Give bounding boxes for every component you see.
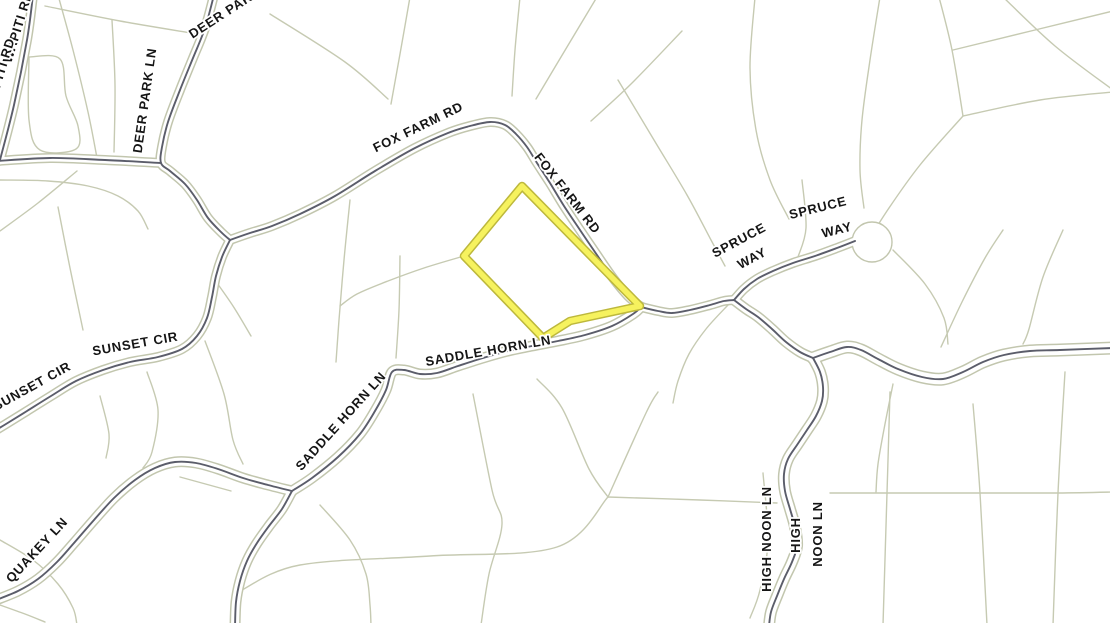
parcel-line-11 [336,200,350,362]
parcel-line-12 [340,256,464,306]
parcel-line-21 [973,404,987,623]
road-label-spruce-way-2b: WAY [820,219,854,241]
parcel-line-37 [512,0,520,96]
parcel-line-3 [28,56,80,153]
road-casing-high-noon-ln [769,358,823,623]
parcel-line-45 [180,477,231,491]
parcel-line-34 [860,0,880,208]
road-label-spruce-way-2a: SPRUCE [787,193,848,222]
road-label-high-noon-ln-2b: NOON LN [810,501,825,567]
parcel-line-13 [473,394,502,623]
parcel-line-36 [391,0,410,104]
parcel-line-28 [1023,230,1063,344]
parcel-line-46 [0,605,45,622]
parcel-line-17 [608,497,777,503]
road-saddle-horn-ln [292,307,641,491]
parcel-line-22 [1053,372,1065,623]
road-label-fox-farm-rd-2: FOX FARM RD [531,150,603,237]
parcel-line-39 [591,31,682,121]
parcel-map-svg[interactable]: WAPITI RDWAPITI RDDEER PARK LNDEER PARK … [0,0,1110,623]
road-label-high-noon-ln-1: HIGH NOON LN [759,486,774,592]
road-label-deer-park-ln-1: DEER PARK LN [186,0,283,41]
parcel-line-5 [58,207,83,330]
parcel-line-32 [618,80,725,266]
parcel-line-9 [100,396,109,458]
parcel-line-25 [953,11,1110,50]
highlighted-parcel-edge [464,186,640,338]
map-canvas[interactable]: WAPITI RDWAPITI RDDEER PARK LNDEER PARK … [0,0,1110,623]
parcel-line-10 [205,341,243,464]
parcel-line-24 [939,0,963,116]
parcel-line-40 [673,305,728,403]
parcel-line-26 [963,92,1110,116]
parcel-line-7 [396,256,400,358]
parcel-line-35 [270,14,388,99]
parcel-line-42 [0,180,148,229]
parcel-line-27 [941,230,1003,347]
parcel-line-19 [830,492,1110,493]
parcel-line-33 [750,0,789,219]
road-label-spruce-way-1b: WAY [735,244,769,272]
parcel-line-18 [320,505,371,623]
parcel-line-38 [536,0,597,99]
road-label-high-noon-ln-2a: HIGH [788,517,803,553]
parcel-line-15 [608,392,658,497]
parcel-line-16 [240,497,608,591]
road-label-deer-park-ln-2: DEER PARK LN [130,47,160,154]
parcel-line-8 [143,372,158,468]
parcel-line-14 [537,379,608,497]
parcel-line-30 [1003,0,1110,90]
parcel-line-2 [112,20,115,152]
parcel-line-29 [893,250,948,344]
